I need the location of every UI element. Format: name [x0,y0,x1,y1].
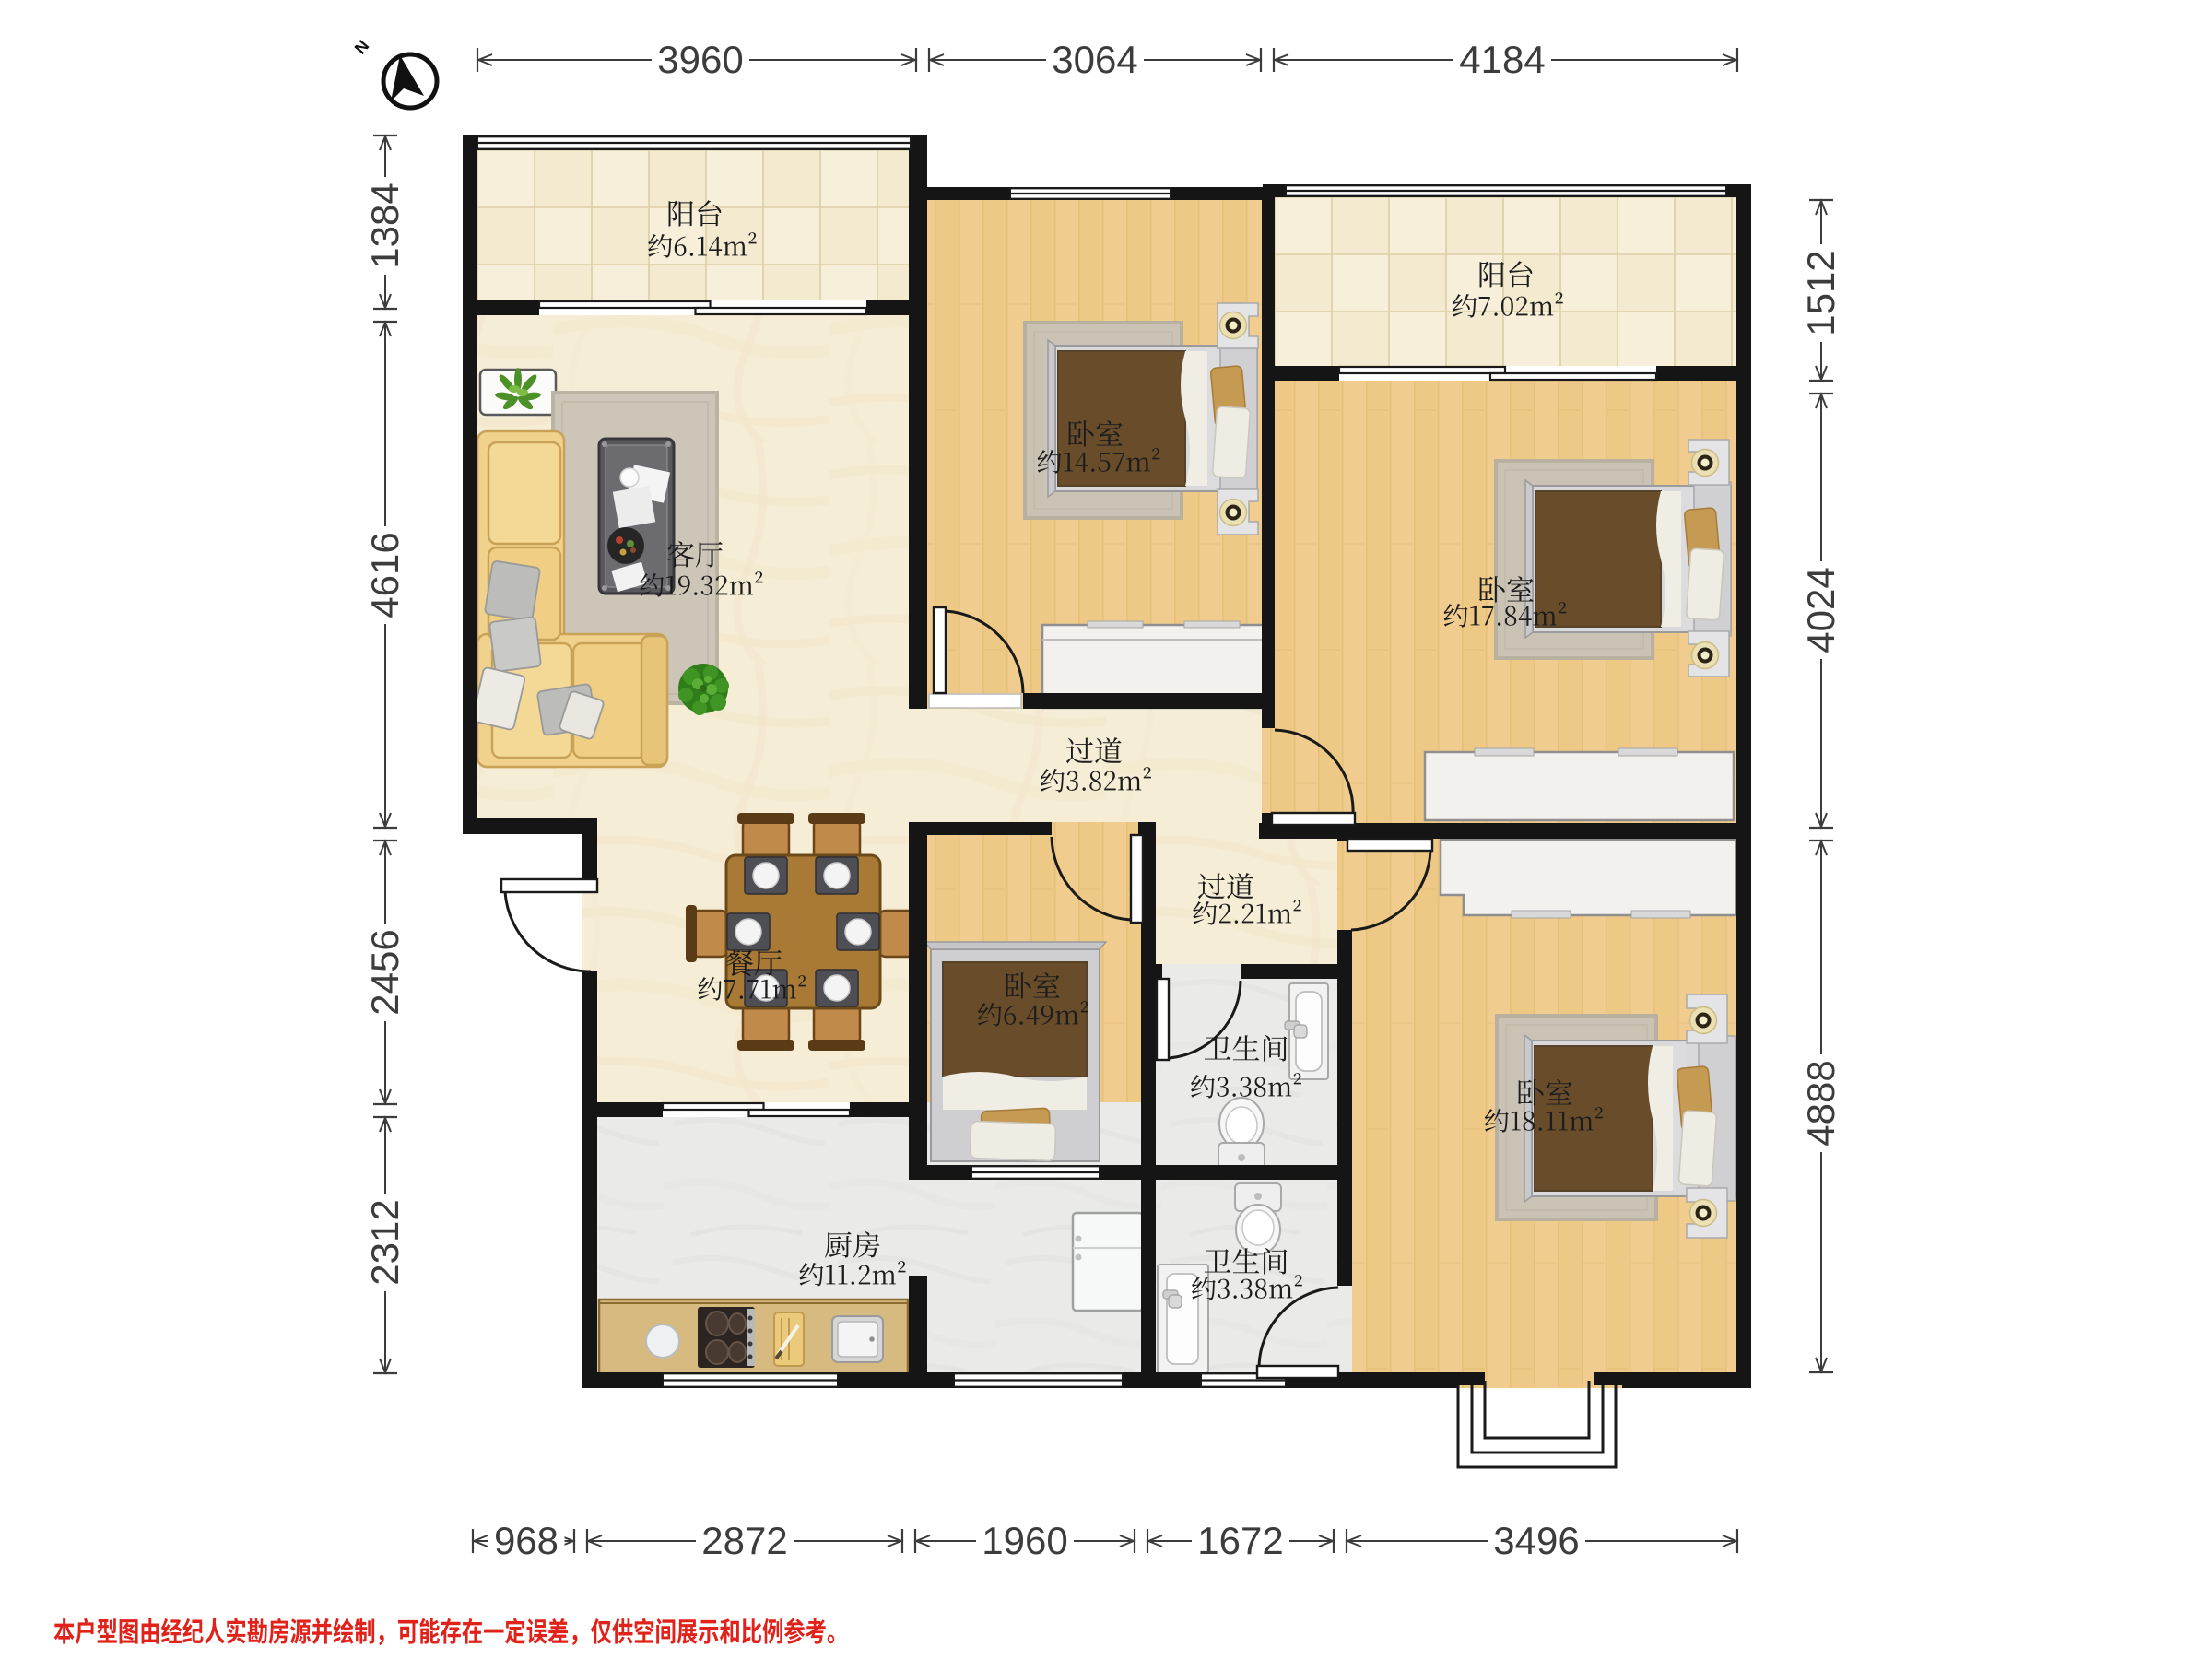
svg-text:3064: 3064 [1052,38,1137,81]
svg-text:1384: 1384 [363,182,406,268]
svg-text:2872: 2872 [701,1519,787,1562]
svg-text:4184: 4184 [1459,38,1545,81]
svg-text:1960: 1960 [982,1519,1067,1562]
svg-text:4024: 4024 [1799,567,1842,653]
svg-text:968: 968 [494,1519,559,1562]
svg-text:2312: 2312 [363,1199,406,1285]
svg-text:4616: 4616 [363,532,406,618]
svg-text:3496: 3496 [1493,1519,1579,1562]
svg-text:2456: 2456 [363,929,406,1015]
svg-text:1672: 1672 [1197,1519,1283,1562]
svg-text:1512: 1512 [1799,250,1842,335]
svg-text:3960: 3960 [657,38,743,81]
svg-text:4888: 4888 [1799,1060,1842,1146]
